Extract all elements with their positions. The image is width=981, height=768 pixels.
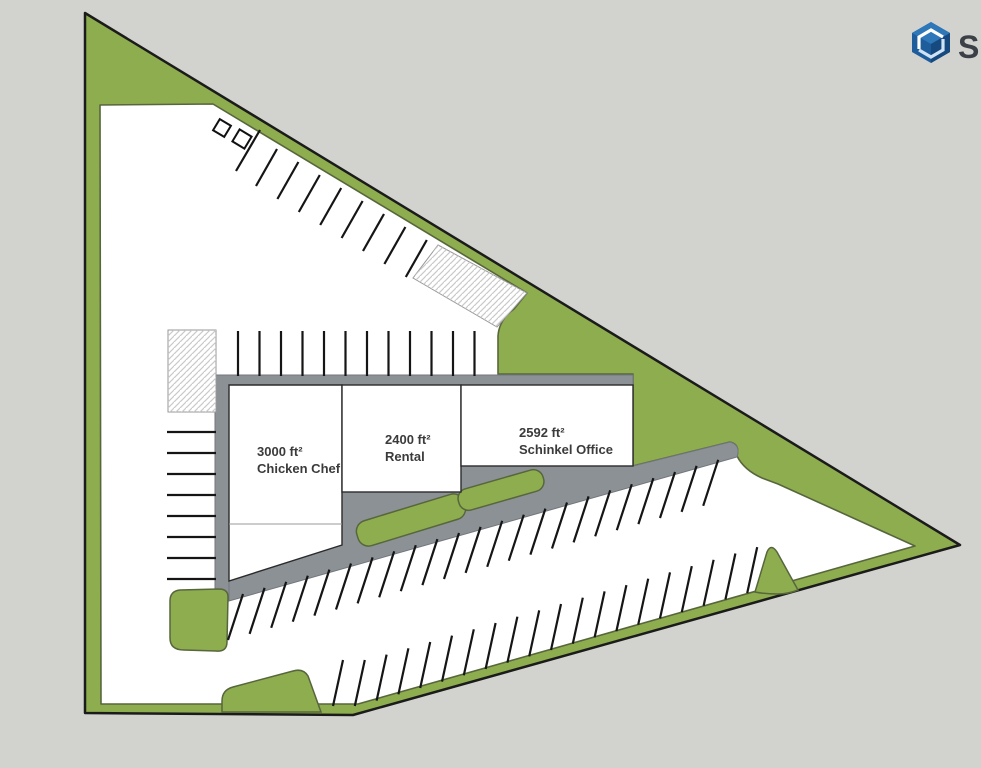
site-plan-canvas: 3000 ft² Chicken Chef 2400 ft² Rental 25… (0, 0, 981, 768)
building-area-label: 3000 ft² (257, 444, 303, 459)
hatched-pad-west (168, 330, 216, 412)
building-name-label: Chicken Chef (257, 461, 341, 476)
building-area-label: 2592 ft² (519, 425, 565, 440)
sketchup-wordmark: Sk (958, 29, 981, 65)
building-area-label: 2400 ft² (385, 432, 431, 447)
grass-patch-southwest (170, 589, 228, 651)
building-name-label: Rental (385, 449, 425, 464)
site-plan-drawing: 3000 ft² Chicken Chef 2400 ft² Rental 25… (0, 0, 981, 768)
building-name-label: Schinkel Office (519, 442, 613, 457)
